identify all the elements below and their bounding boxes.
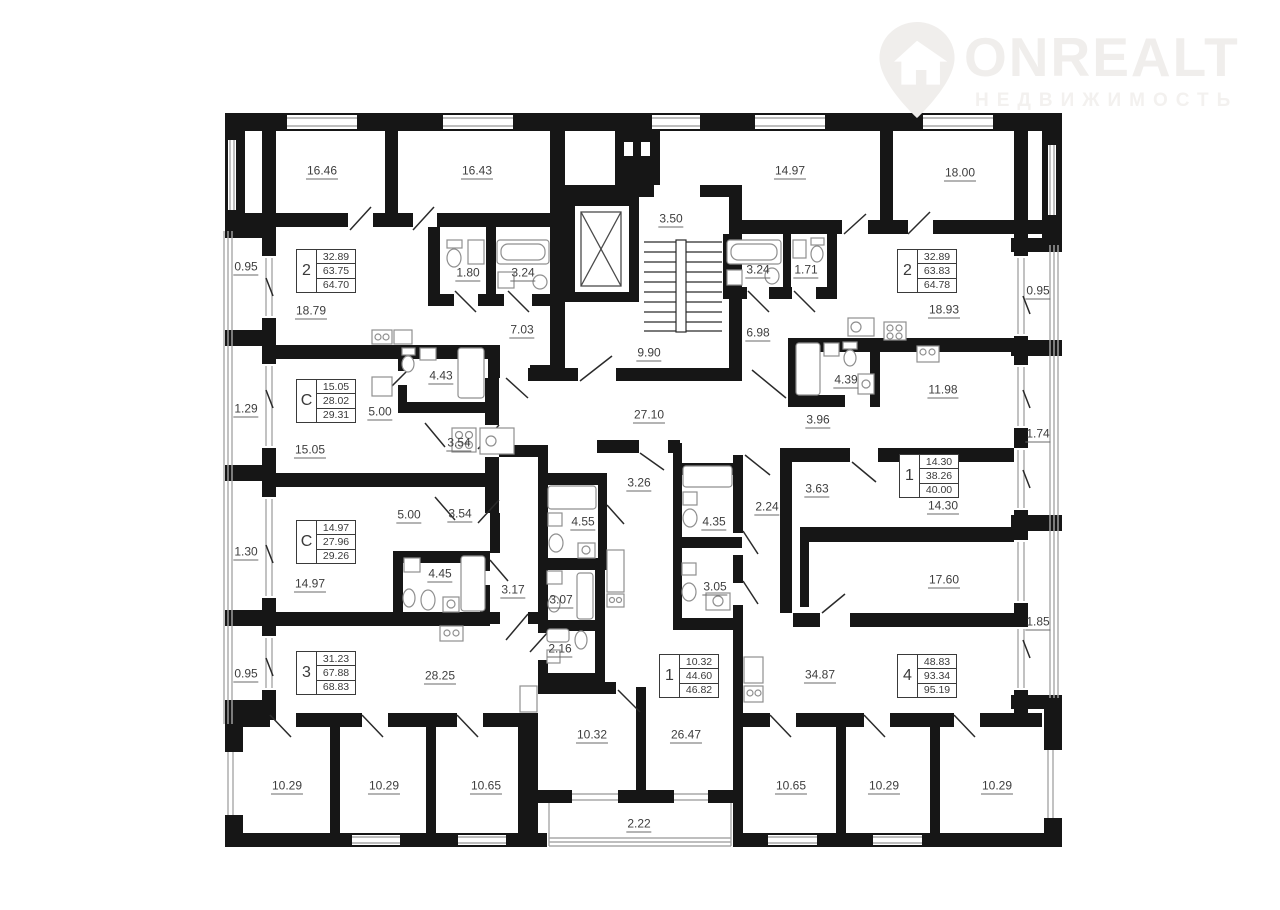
stove-icon [440,626,463,641]
apartment-type: С [297,380,317,422]
apartment-type: 1 [900,455,920,497]
room-area-label: 1.80 [455,267,480,282]
toilet-icon [421,590,435,610]
room-area-label: 16.43 [461,165,493,180]
room-area-label: 4.43 [428,370,453,385]
room-area-label: 15.05 [294,444,326,459]
bathtub-icon [547,629,569,642]
floor-plan-drawing [0,0,1280,910]
apartment-type: 2 [297,250,317,292]
room-area-label: 34.87 [804,669,836,684]
fridge-icon [372,377,392,396]
room-area-label: 3.54 [447,508,472,523]
door-swing-icon [520,686,537,712]
apartment-area: 63.75 [317,264,355,278]
room-area-label: 10.65 [775,780,807,795]
sink-icon [848,318,874,336]
living-area: 32.89 [317,250,355,264]
room-area-label: 2.22 [626,818,651,833]
toilet-icon [683,509,697,527]
living-area: 15.05 [317,380,355,394]
room-area-label: 2.16 [547,643,572,658]
apartment-area: 44.60 [680,669,718,683]
sink-icon [480,428,514,454]
total-area: 64.70 [317,279,355,292]
apartment-info-box: 1 10.3244.6046.82 [659,654,719,698]
room-area-label: 11.98 [927,384,958,399]
room-area-label: 0.95 [233,261,258,276]
floor-plan: ONREALT НЕДВИЖИМОСТЬ 2 32.8963.7564.70 2… [0,0,1280,910]
sink-icon [682,563,696,575]
sink-icon [468,240,484,264]
bathtub-icon [577,573,593,619]
room-area-label: 7.03 [509,324,534,339]
logo-subtitle: НЕДВИЖИМОСТЬ [975,90,1238,112]
washer-icon [443,597,459,612]
bathtub-icon [796,343,820,395]
room-area-label: 10.29 [981,780,1013,795]
room-area-label: 3.24 [745,264,770,279]
washer-icon [858,374,874,394]
apartment-info-box: С 15.0528.0229.31 [296,379,356,423]
room-area-label: 4.55 [570,516,595,531]
stairs-icon [644,240,722,332]
room-area-label: 3.05 [702,581,727,596]
apartment-info-box: 2 32.8963.7564.70 [296,249,356,293]
total-area: 29.31 [317,409,355,422]
toilet-icon [402,348,415,372]
stove-icon [607,594,624,607]
toilet-icon [682,583,696,601]
washer-icon [578,543,595,558]
fridge-icon [744,657,763,683]
logo-brand: ONREALT [964,30,1240,85]
apartment-info-box: 4 48.8393.3495.19 [897,654,957,698]
room-area-label: 1.71 [793,264,818,279]
apartment-info-box: 2 32.8963.8364.78 [897,249,957,293]
total-area: 40.00 [920,484,958,497]
toilet-icon [575,631,587,649]
apartment-area: 63.83 [918,264,956,278]
room-area-label: 0.95 [1025,285,1050,300]
logo: ONREALT НЕДВИЖИМОСТЬ [878,20,1258,120]
bathtub-icon [497,240,549,264]
living-area: 14.30 [920,455,958,469]
room-area-label: 1.29 [233,403,258,418]
room-area-label: 27.10 [633,409,665,424]
apartment-info-box: С 14.9727.9629.26 [296,520,356,564]
sink-icon [403,589,415,607]
living-area: 48.83 [918,655,956,669]
room-area-label: 2.24 [754,501,779,516]
toilet-icon [843,342,857,366]
room-area-label: 4.45 [427,568,452,583]
room-area-label: 3.50 [658,213,683,228]
bathtub-icon [461,556,485,611]
room-area-label: 1.85 [1025,616,1050,631]
toilet-icon [447,240,462,267]
room-area-label: 4.35 [701,516,726,531]
sink-icon [548,513,562,526]
sink-icon [420,348,436,360]
room-area-label: 3.17 [500,584,525,599]
room-area-label: 3.26 [626,477,651,492]
apartment-type: С [297,521,317,563]
apartment-area: 93.34 [918,669,956,683]
room-area-label: 14.97 [774,165,806,180]
room-area-label: 6.98 [745,327,770,342]
bathtub-icon [548,486,596,509]
total-area: 95.19 [918,684,956,697]
total-area: 64.78 [918,279,956,292]
room-area-label: 1.74 [1025,428,1050,443]
room-area-label: 5.00 [367,406,392,421]
sink-icon [394,330,412,344]
room-area-label: 10.65 [470,780,502,795]
stove-icon [917,346,939,362]
living-area: 32.89 [918,250,956,264]
room-area-label: 3.07 [548,594,573,609]
sink-icon [547,571,562,584]
apartment-info-box: 3 31.2367.8868.83 [296,651,356,695]
room-area-label: 10.32 [576,729,608,744]
room-area-label: 0.95 [233,668,258,683]
sink-icon [793,240,806,258]
room-area-label: 4.39 [833,374,858,389]
apartment-area: 38.26 [920,469,958,483]
fridge-icon [607,550,624,592]
apartment-type: 1 [660,655,680,697]
room-area-label: 28.25 [424,670,456,685]
stove-icon [884,322,906,340]
room-area-label: 10.29 [271,780,303,795]
total-area: 46.82 [680,684,718,697]
room-area-label: 26.47 [670,729,702,744]
room-area-label: 18.93 [928,304,960,319]
room-area-label: 14.30 [927,500,959,515]
bathtub-icon [458,348,484,398]
washer-icon [706,593,730,610]
stove-icon [744,686,763,702]
sink-icon [404,558,420,572]
sink-icon [824,343,839,356]
room-area-label: 3.54 [446,437,471,452]
total-area: 68.83 [317,681,355,694]
logo-pin-icon [878,22,956,118]
room-area-label: 3.63 [804,483,829,498]
apartment-area: 27.96 [317,535,355,549]
room-area-label: 1.30 [233,546,258,561]
room-area-label: 14.97 [294,578,326,593]
sink-icon [683,492,697,505]
room-area-label: 10.29 [868,780,900,795]
room-area-label: 5.00 [396,509,421,524]
apartment-area: 28.02 [317,394,355,408]
elevator-icon [581,212,621,286]
living-area: 14.97 [317,521,355,535]
total-area: 29.26 [317,550,355,563]
room-area-label: 10.29 [368,780,400,795]
room-area-label: 3.24 [510,267,535,282]
room-area-label: 17.60 [928,574,960,589]
living-area: 31.23 [317,652,355,666]
bathtub-icon [683,466,732,487]
room-area-label: 18.79 [295,305,327,320]
toilet-icon [549,534,563,552]
apartment-info-box: 1 14.3038.2640.00 [899,454,959,498]
apartment-type: 2 [898,250,918,292]
toilet-icon [811,238,824,262]
apartment-type: 3 [297,652,317,694]
apartment-type: 4 [898,655,918,697]
room-area-label: 3.96 [805,414,830,429]
room-area-label: 16.46 [306,165,338,180]
room-area-label: 9.90 [636,347,661,362]
apartment-area: 67.88 [317,666,355,680]
living-area: 10.32 [680,655,718,669]
room-area-label: 18.00 [944,167,976,182]
stove-icon [372,330,392,344]
bathtub-icon [727,240,781,264]
